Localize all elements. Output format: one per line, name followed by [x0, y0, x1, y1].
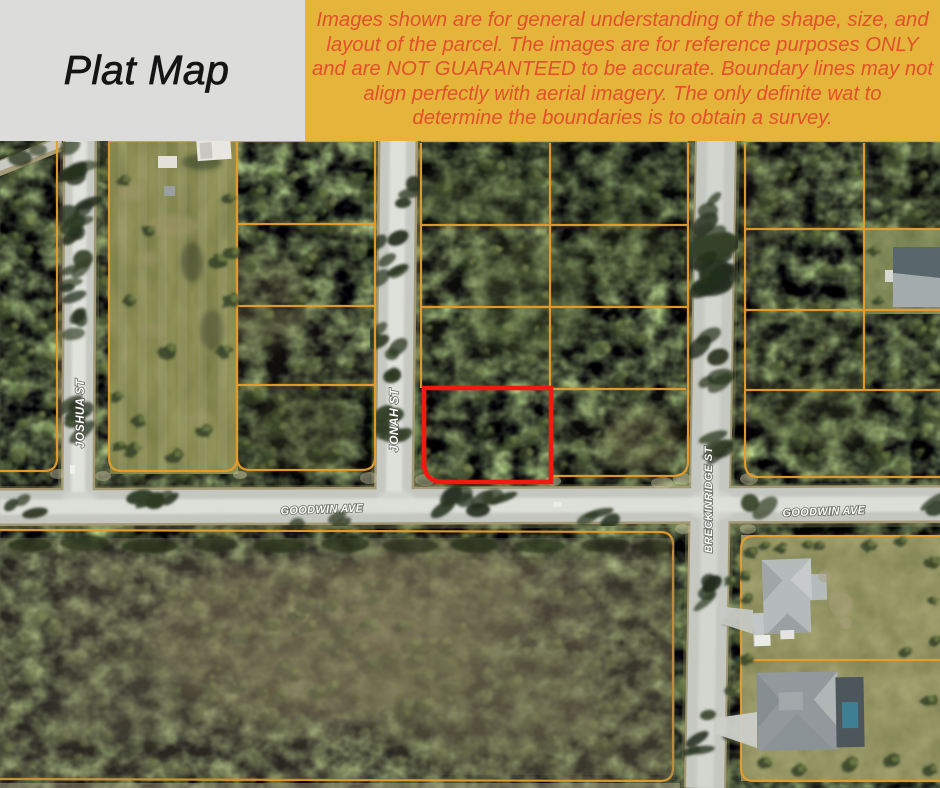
svg-text:BRECKINRIDGE ST: BRECKINRIDGE ST: [703, 445, 715, 553]
svg-text:JOSHUA ST: JOSHUA ST: [75, 378, 87, 448]
svg-text:JONAH ST: JONAH ST: [387, 387, 401, 452]
